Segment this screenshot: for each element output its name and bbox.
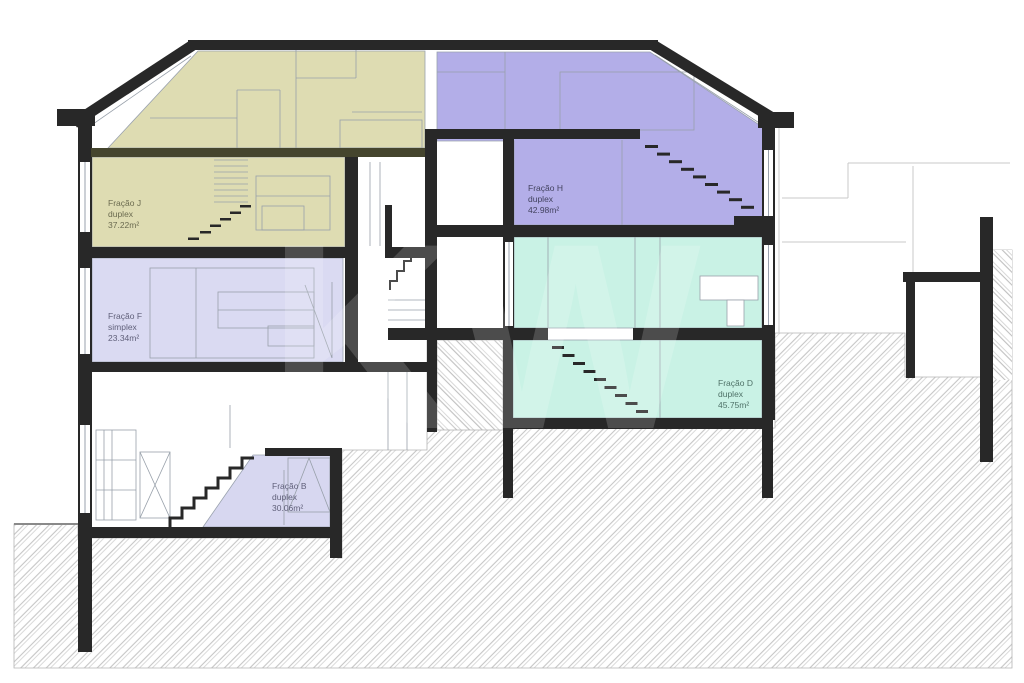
unit-J-type: duplex xyxy=(108,209,134,219)
neighbor-outlines xyxy=(779,128,1010,333)
unit-J-name: Fração J xyxy=(108,198,141,208)
unit-J-area: 37.22m² xyxy=(108,220,139,230)
unit-F-name: Fração F xyxy=(108,311,142,321)
attic-slab-right xyxy=(437,129,640,139)
window-left-F xyxy=(80,268,90,354)
right-wall-footing xyxy=(762,418,773,498)
unit-F-area: 23.34m² xyxy=(108,333,139,343)
unit-B-area: 30.06m² xyxy=(272,503,303,513)
unit-B-type: duplex xyxy=(272,492,298,502)
section-drawing-canvas: Fração J duplex 37.22m² Fração F simplex… xyxy=(0,0,1024,683)
eave-right xyxy=(758,112,794,128)
building-section-svg: Fração J duplex 37.22m² Fração F simplex… xyxy=(0,0,1024,683)
watermark-text: KW xyxy=(267,189,703,485)
landing-H xyxy=(734,216,766,225)
basement-floor-slab xyxy=(88,527,340,538)
window-left-J xyxy=(80,162,90,232)
unit-D-type: duplex xyxy=(718,389,744,399)
eave-left xyxy=(57,109,95,126)
retaining-thin-wall xyxy=(906,282,915,378)
window-right-D xyxy=(764,245,773,325)
roof-ridge xyxy=(188,40,658,50)
unit-D-area: 45.75m² xyxy=(718,400,749,410)
unit-F-type: simplex xyxy=(108,322,138,332)
unit-D-name: Fração D xyxy=(718,378,753,388)
retaining-wall xyxy=(980,217,993,462)
window-left-basement xyxy=(80,425,90,513)
window-right-H xyxy=(764,150,773,216)
basement-cabinet xyxy=(96,430,136,520)
retaining-beam xyxy=(903,272,983,282)
attic-slab-left xyxy=(91,148,425,157)
